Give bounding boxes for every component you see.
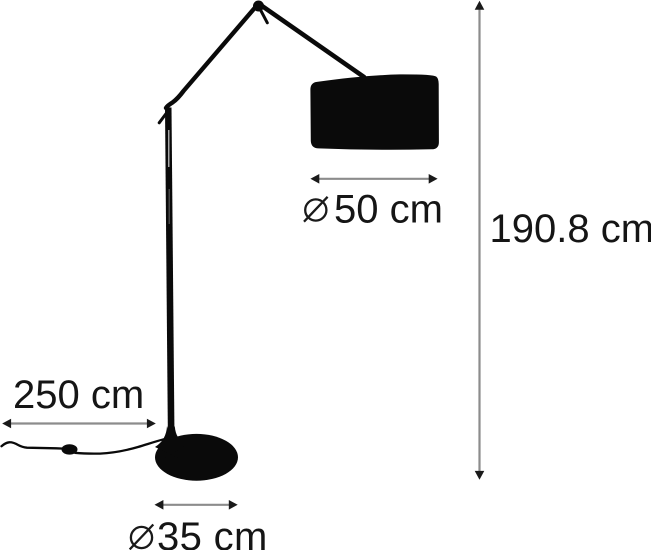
svg-text:250 cm: 250 cm (13, 373, 144, 417)
svg-text:50 cm: 50 cm (334, 188, 443, 232)
svg-text:35 cm: 35 cm (157, 515, 268, 550)
svg-text:190.8 cm: 190.8 cm (490, 207, 651, 251)
